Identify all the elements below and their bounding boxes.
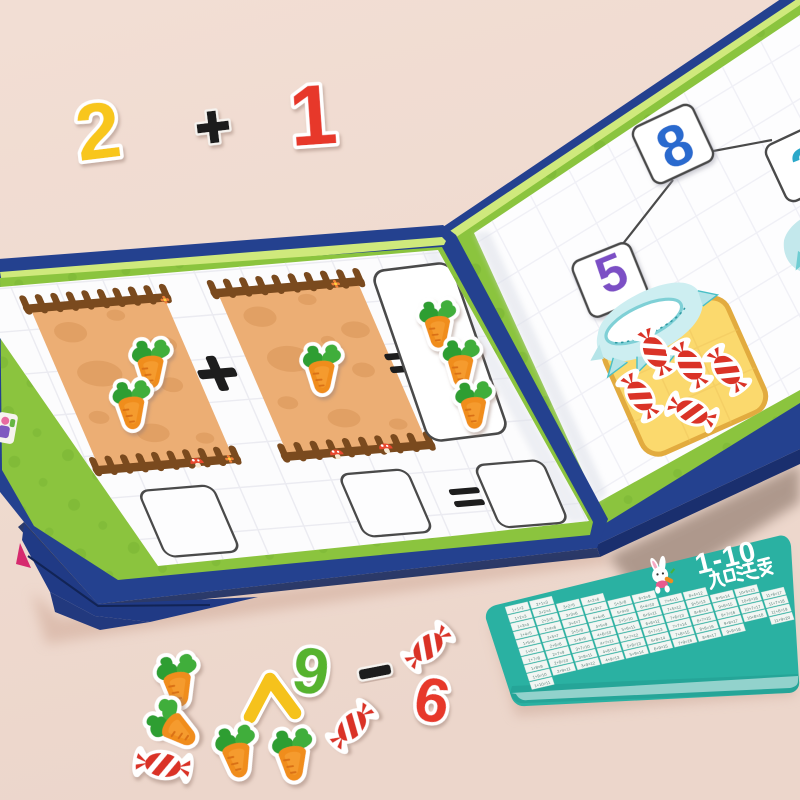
- svg-text:1: 1: [286, 67, 340, 165]
